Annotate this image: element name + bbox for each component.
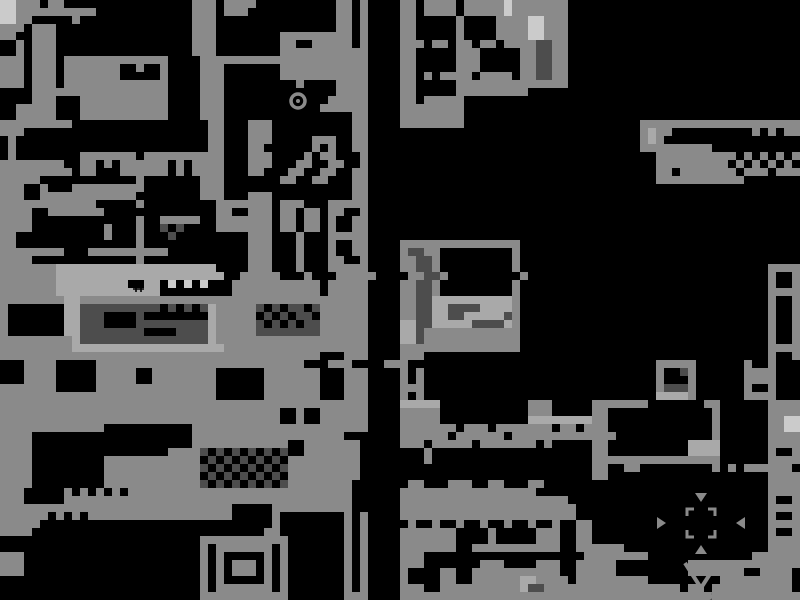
game-map-canvas[interactable] [0, 0, 800, 600]
map-viewport [0, 0, 800, 600]
